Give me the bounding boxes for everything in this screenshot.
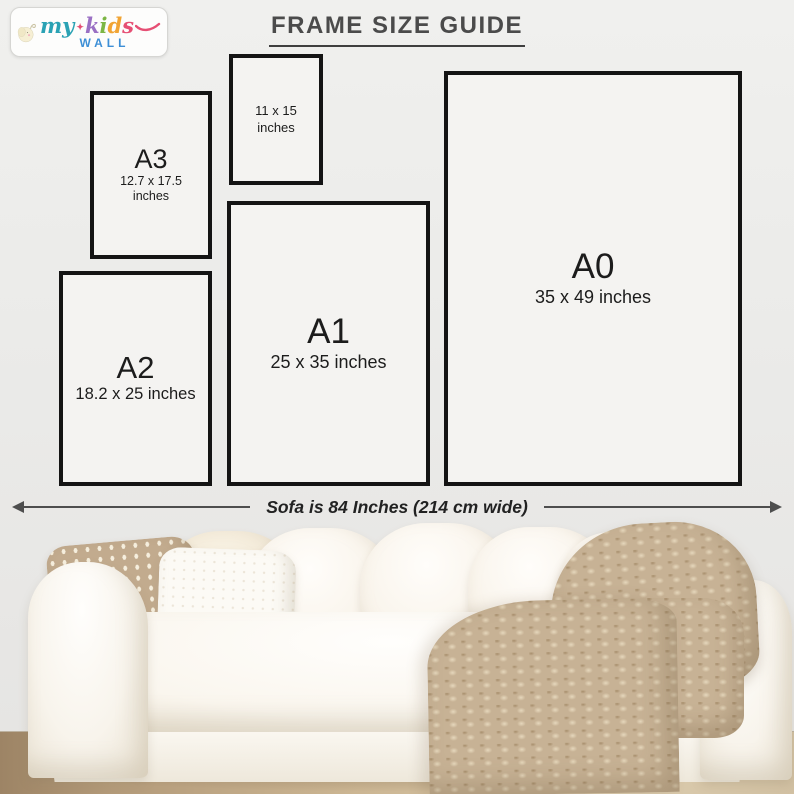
frame-size-line: 11 x 15 — [255, 103, 297, 119]
knit-blanket — [426, 598, 679, 794]
frame-size-line: 25 x 35 inches — [270, 351, 386, 374]
swash-icon — [135, 21, 161, 33]
arrow-left-icon — [12, 501, 24, 513]
frame-11x15: 11 x 15 inches — [229, 54, 323, 185]
page-title: FRAME SIZE GUIDE — [269, 12, 525, 47]
brand-letter-d: d — [107, 16, 122, 36]
brand-word-my: my — [40, 16, 74, 36]
frame-label: A3 — [134, 145, 167, 173]
brand-letter-i: i — [100, 16, 108, 36]
frame-size-line: inches — [133, 189, 169, 205]
sofa-left-arm — [28, 562, 148, 778]
frame-label: A2 — [117, 352, 155, 385]
frame-size-line: 35 x 49 inches — [535, 286, 651, 309]
arrow-line — [24, 506, 250, 508]
brand-logo: my ✦ k i d s WALL — [10, 7, 168, 57]
frame-a0: A0 35 x 49 inches — [444, 71, 742, 486]
frame-a1: A1 25 x 35 inches — [227, 201, 430, 486]
frame-a2: A2 18.2 x 25 inches — [59, 271, 212, 486]
brand-letter-k: k — [85, 16, 100, 36]
frame-label: A0 — [572, 249, 615, 286]
brand-letter-s: s — [122, 16, 134, 36]
brand-word-wall: WALL — [79, 37, 129, 49]
frame-size-line: inches — [257, 120, 295, 136]
sparkle-icon: ✦ — [76, 18, 84, 38]
sofa-width-annotation: Sofa is 84 Inches (214 cm wide) — [12, 496, 782, 518]
frame-size-guide-image: my ✦ k i d s WALL FRAME SIZE GUIDE A3 12… — [0, 0, 794, 794]
elephant-icon — [17, 11, 38, 53]
brand-script: my ✦ k i d s — [40, 16, 161, 36]
arrow-line — [544, 506, 770, 508]
frame-label: A1 — [307, 314, 350, 351]
arrow-right-icon — [770, 501, 782, 513]
sofa-width-label: Sofa is 84 Inches (214 cm wide) — [266, 497, 528, 518]
frame-size-line: 18.2 x 25 inches — [75, 384, 195, 405]
frame-size-line: 12.7 x 17.5 — [120, 174, 182, 190]
frame-a3: A3 12.7 x 17.5 inches — [90, 91, 212, 259]
